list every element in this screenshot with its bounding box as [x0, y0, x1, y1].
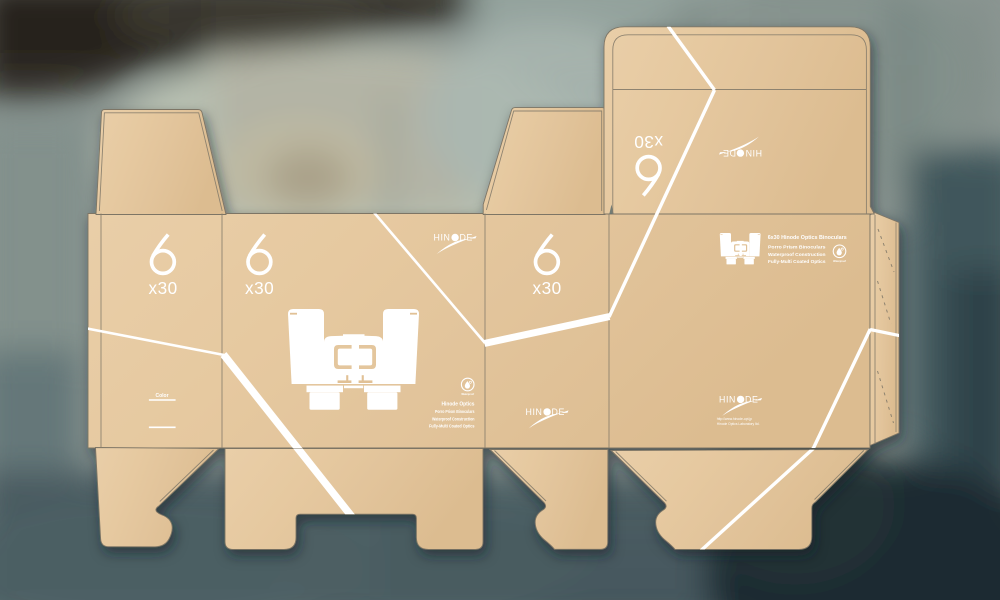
svg-text:http://www.hinode-opt.jp: http://www.hinode-opt.jp	[717, 417, 752, 421]
svg-text:Waterproof Construction: Waterproof Construction	[432, 416, 475, 421]
svg-text:Color: Color	[155, 393, 168, 399]
svg-text:Hinode Optics: Hinode Optics	[442, 402, 475, 408]
svg-text:Fully-Multi Coated Optics: Fully-Multi Coated Optics	[768, 259, 826, 265]
svg-text:Porro Prism Binoculars: Porro Prism Binoculars	[435, 409, 475, 414]
svg-text:6x30 Hinode Optics Binoculars: 6x30 Hinode Optics Binoculars	[768, 235, 847, 241]
svg-text:Fully-Multi Coated Optics: Fully-Multi Coated Optics	[429, 424, 475, 429]
svg-text:Porro Prism Binoculars: Porro Prism Binoculars	[768, 244, 826, 250]
svg-text:Waterproof Construction: Waterproof Construction	[768, 252, 826, 258]
svg-text:Hinode Optics Laboratory ltd.: Hinode Optics Laboratory ltd.	[717, 422, 760, 426]
